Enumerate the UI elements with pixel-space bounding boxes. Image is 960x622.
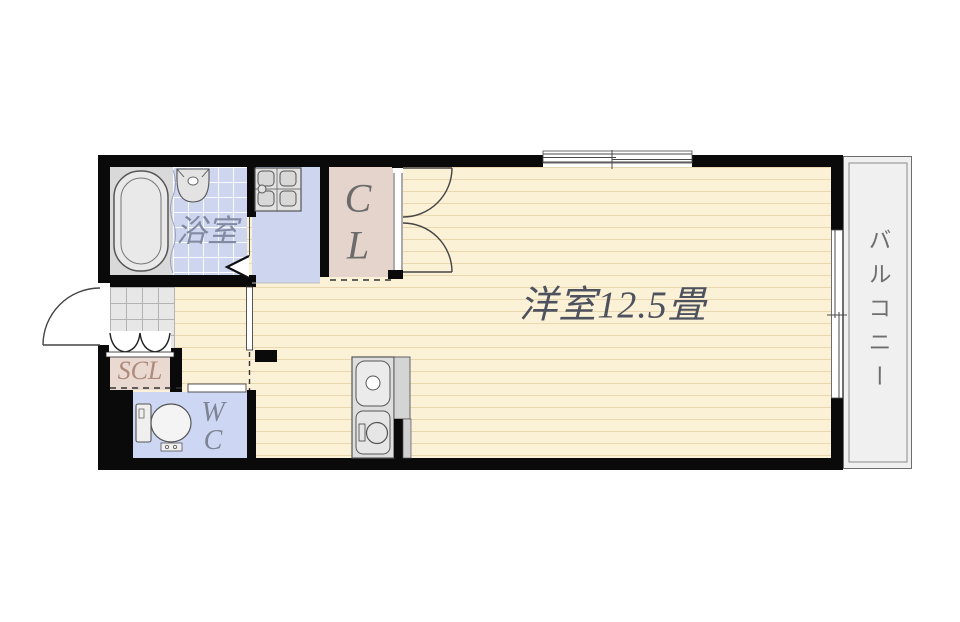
bathroom-folding-door [227, 256, 249, 278]
main-room-label: 洋室12.5畳 [519, 274, 707, 329]
walls-and-fixtures [0, 0, 960, 622]
balcony-label: バルコニー [860, 228, 894, 398]
closet-label-c: C [345, 175, 372, 222]
toilet-label-c: C [204, 425, 223, 457]
tub-tile-wavy-line [171, 170, 176, 273]
wc-door [188, 384, 246, 392]
floor-plan: 浴室 C L 洋室12.5畳 SCL W C バルコニー [0, 0, 960, 622]
hall-partition [247, 287, 253, 350]
shoe-closet-label: SCL [118, 356, 163, 386]
toilet-icon [136, 404, 191, 451]
washbasin-icon [177, 169, 209, 202]
entry-door-arc [43, 283, 110, 345]
closet-label-l: L [347, 222, 369, 269]
bathroom-label: 浴室 [176, 206, 238, 251]
window-sliding-top [543, 150, 692, 169]
bathtub-icon [114, 171, 168, 271]
closet-door-arcs [394, 168, 452, 272]
stove-icon [255, 168, 301, 211]
scl-folding-doors [106, 331, 174, 357]
balcony-sliding-door [827, 230, 847, 398]
kitchen-unit-icon [352, 357, 411, 458]
